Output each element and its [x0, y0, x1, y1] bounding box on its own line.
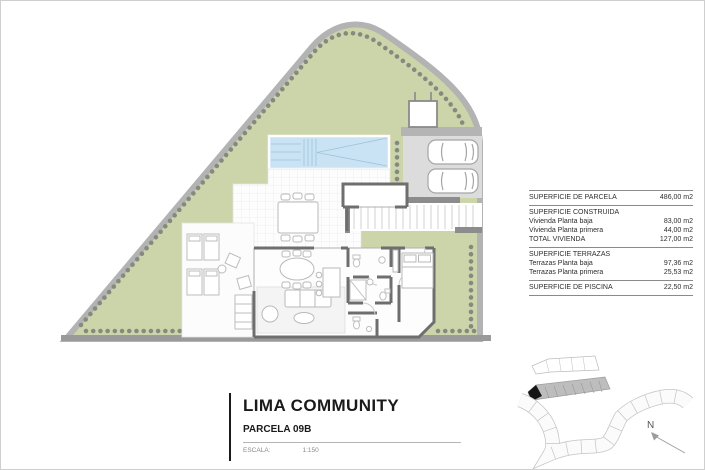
armchair [262, 306, 278, 322]
car-icon [428, 140, 478, 164]
row-value: 486,00 m2 [660, 193, 693, 202]
minimap [520, 356, 688, 459]
table-section: SUPERFICIE DE PARCELA 486,00 m2 [529, 190, 693, 205]
row-label: SUPERFICIE DE PISCINA [529, 283, 613, 292]
closet [393, 250, 398, 272]
project-title: LIMA COMMUNITY [243, 396, 461, 416]
row-value: 83,00 m2 [664, 217, 693, 226]
table-section: SUPERFICIE TERRAZAS Terrazas Planta baja… [529, 247, 693, 280]
table-row: TOTAL VIVIENDA 127,00 m2 [529, 235, 693, 244]
document-page: N SUPERFICIE DE PARCELA 486,00 m2 SUPERF… [0, 0, 705, 470]
table-section: SUPERFICIE CONSTRUIDA Vivienda Planta ba… [529, 205, 693, 247]
kitchen-island [323, 268, 340, 297]
row-label: Terrazas Planta baja [529, 259, 593, 268]
table-row: Terrazas Planta baja 97,36 m2 [529, 259, 693, 268]
table-section-header: SUPERFICIE CONSTRUIDA [529, 208, 693, 217]
scale-row: ESCALA: 1:150 [243, 442, 461, 454]
terrace-chaise [235, 295, 252, 329]
row-label: Vivienda Planta primera [529, 226, 603, 235]
north-arrow: N [647, 420, 685, 453]
entry-room [343, 184, 407, 207]
table-row: SUPERFICIE DE PARCELA 486,00 m2 [529, 193, 693, 202]
toilet [353, 259, 359, 267]
row-value: 25,53 m2 [664, 268, 693, 277]
row-value: 44,00 m2 [664, 226, 693, 235]
toilet [354, 321, 360, 329]
toilet [380, 292, 386, 300]
table-section-header: SUPERFICIE TERRAZAS [529, 250, 693, 259]
row-label: SUPERFICIE DE PARCELA [529, 193, 617, 202]
row-label: Vivienda Planta baja [529, 217, 593, 226]
parcel-subtitle: PARCELA 09B [243, 424, 461, 435]
table-row: Vivienda Planta primera 44,00 m2 [529, 226, 693, 235]
sink [367, 279, 373, 285]
row-label: TOTAL VIVIENDA [529, 235, 585, 244]
row-label: Terrazas Planta primera [529, 268, 603, 277]
row-value: 22,50 m2 [664, 283, 693, 292]
table-row: SUPERFICIE DE PISCINA 22,50 m2 [529, 283, 693, 292]
title-block: LIMA COMMUNITY PARCELA 09B ESCALA: 1:150 [229, 392, 461, 454]
left-terrace [182, 223, 254, 337]
row-value: 127,00 m2 [660, 235, 693, 244]
scale-label: ESCALA: [243, 447, 270, 454]
scale-value: 1:150 [302, 447, 318, 454]
sink [366, 326, 371, 331]
row-value: 97,36 m2 [664, 259, 693, 268]
indoor-dining-table [280, 258, 314, 280]
car-icon [428, 169, 478, 193]
minimap-phase-strip [528, 377, 610, 401]
table-row: Terrazas Planta primera 25,53 m2 [529, 268, 693, 277]
areas-table: SUPERFICIE DE PARCELA 486,00 m2 SUPERFIC… [529, 190, 693, 296]
sink [379, 257, 385, 263]
coffee-table [294, 313, 314, 324]
title-block-bar [229, 393, 231, 461]
pool [269, 136, 389, 169]
table-row: Vivienda Planta baja 83,00 m2 [529, 217, 693, 226]
table-section: SUPERFICIE DE PISCINA 22,50 m2 [529, 280, 693, 296]
north-label: N [647, 420, 654, 431]
